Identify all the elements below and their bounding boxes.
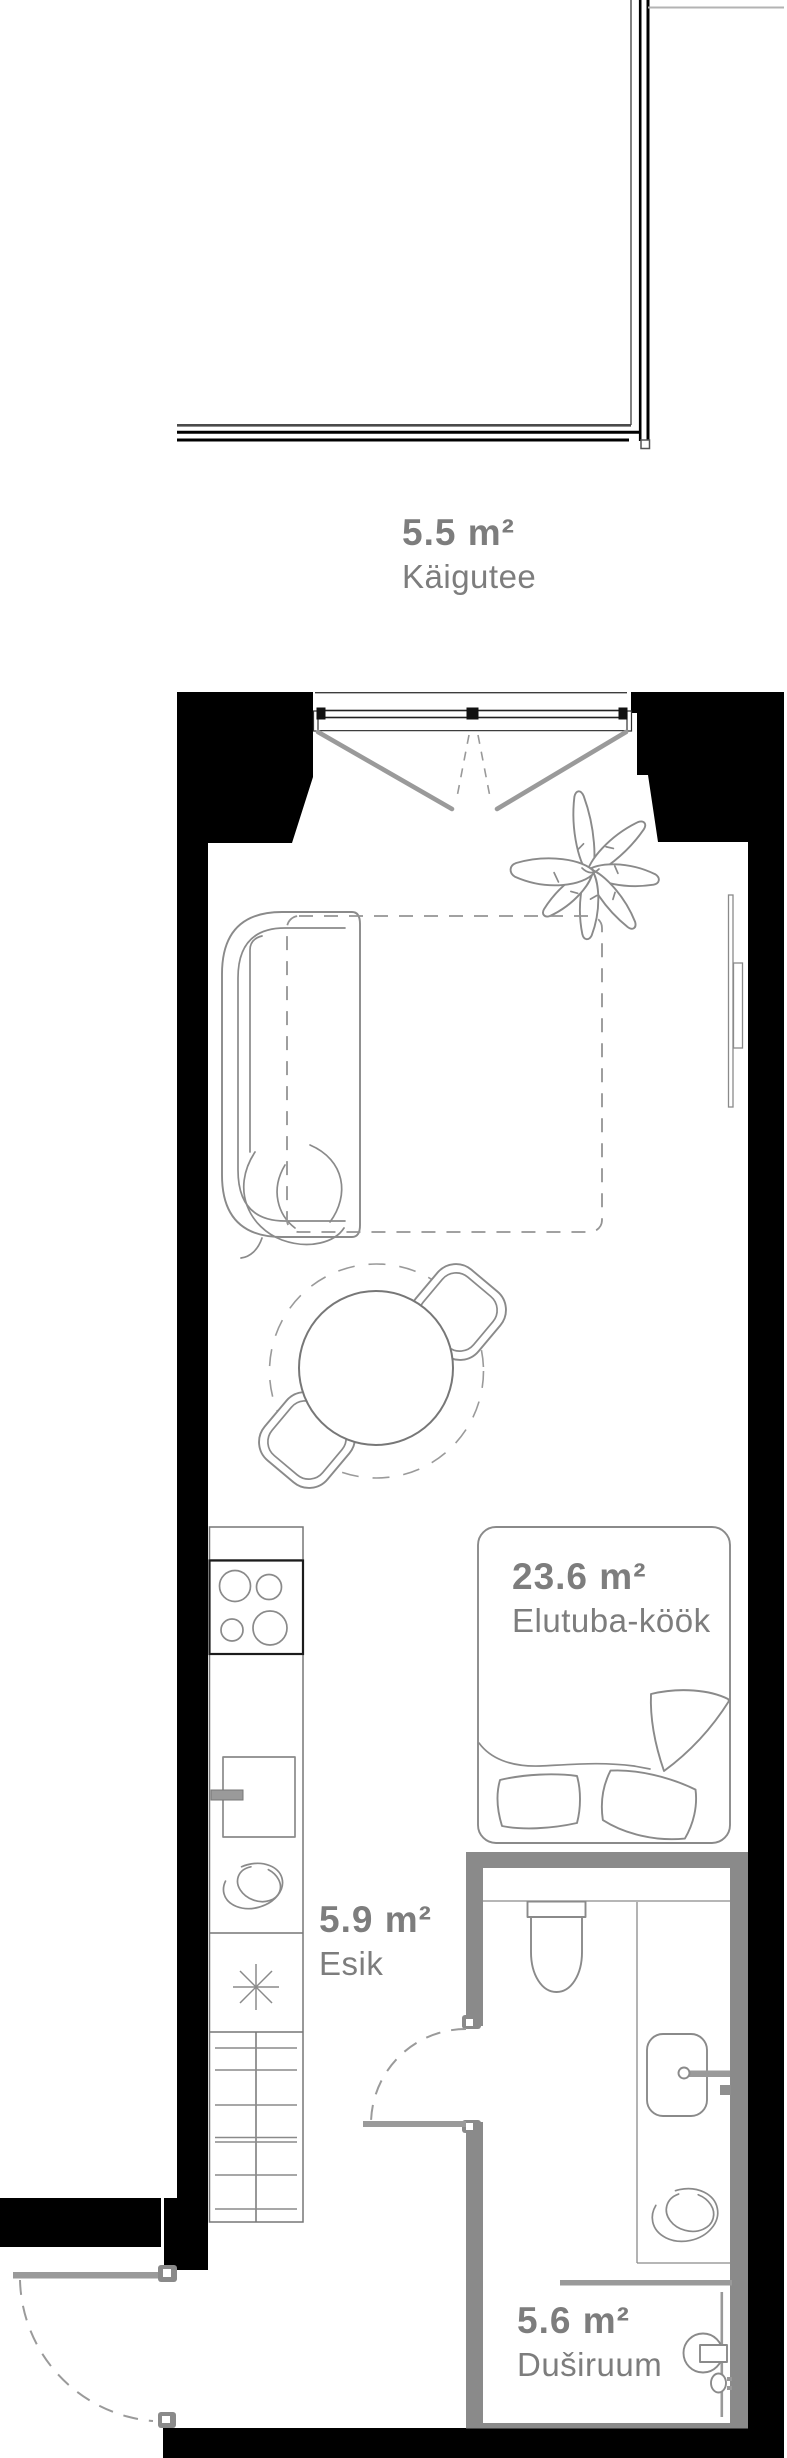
faucet-arm — [689, 2071, 730, 2078]
room-area: 5.6 m² — [517, 2302, 662, 2339]
room-area: 5.5 m² — [402, 514, 536, 551]
door-swing-right — [497, 732, 626, 809]
burner — [253, 1611, 287, 1645]
entry-wall-corner — [164, 2198, 208, 2270]
floor-plan-drawing — [0, 0, 787, 2458]
door-frame-right — [627, 711, 632, 731]
burner — [221, 1619, 243, 1641]
door-swing-left — [318, 732, 452, 809]
entry-wall-band — [0, 2198, 161, 2247]
sofa — [222, 912, 360, 1258]
door-stop — [158, 2265, 177, 2428]
appliance-handle — [211, 1790, 243, 1800]
burner — [220, 1571, 251, 1602]
burner — [257, 1575, 282, 1600]
appliance — [211, 1757, 295, 1837]
stove — [210, 1561, 304, 1655]
room-label-dusiruum: 5.6 m² Duširuum — [517, 2302, 662, 2381]
room-name: Esik — [319, 1947, 432, 1980]
bottom-wall — [163, 2428, 784, 2458]
room-label-esik: 5.9 m² Esik — [319, 1901, 432, 1980]
shower-head — [684, 2334, 733, 2393]
door-leaf-right — [477, 711, 623, 718]
balcony-door — [314, 693, 632, 809]
room-label-elutuba: 23.6 m² Elutuba-köök — [512, 1558, 711, 1637]
entry-door — [13, 2265, 177, 2428]
washbasin — [647, 2034, 731, 2116]
room-name: Duširuum — [517, 2348, 662, 2381]
wall-end-cap — [641, 440, 650, 449]
corridor-walls — [177, 0, 784, 449]
pillow — [498, 1774, 580, 1828]
kitchen-sink-icon — [218, 1857, 287, 1915]
room-area: 23.6 m² — [512, 1558, 711, 1595]
room-name: Käigutee — [402, 560, 536, 593]
wardrobe — [215, 2032, 297, 2222]
light-symbol — [233, 1964, 279, 2010]
room-area: 5.9 m² — [319, 1901, 432, 1938]
kitchen-counter — [210, 1527, 304, 2222]
room-name: Elutuba-köök — [512, 1604, 711, 1637]
dining-table — [299, 1291, 453, 1445]
bathroom-door — [363, 2029, 466, 2127]
shower-drain-icon — [647, 2183, 722, 2248]
door-stop — [462, 2015, 481, 2133]
floor-plan: 5.5 m² Käigutee 23.6 m² Elutuba-köök 5.9… — [0, 0, 787, 2458]
dining-set — [249, 1254, 516, 1498]
toilet — [528, 1902, 586, 1993]
room-label-kaigutee: 5.5 m² Käigutee — [402, 514, 536, 593]
faucet — [679, 2068, 690, 2079]
plant-icon — [510, 790, 660, 940]
radiator — [729, 895, 743, 1107]
door-leaf-left — [322, 711, 469, 718]
